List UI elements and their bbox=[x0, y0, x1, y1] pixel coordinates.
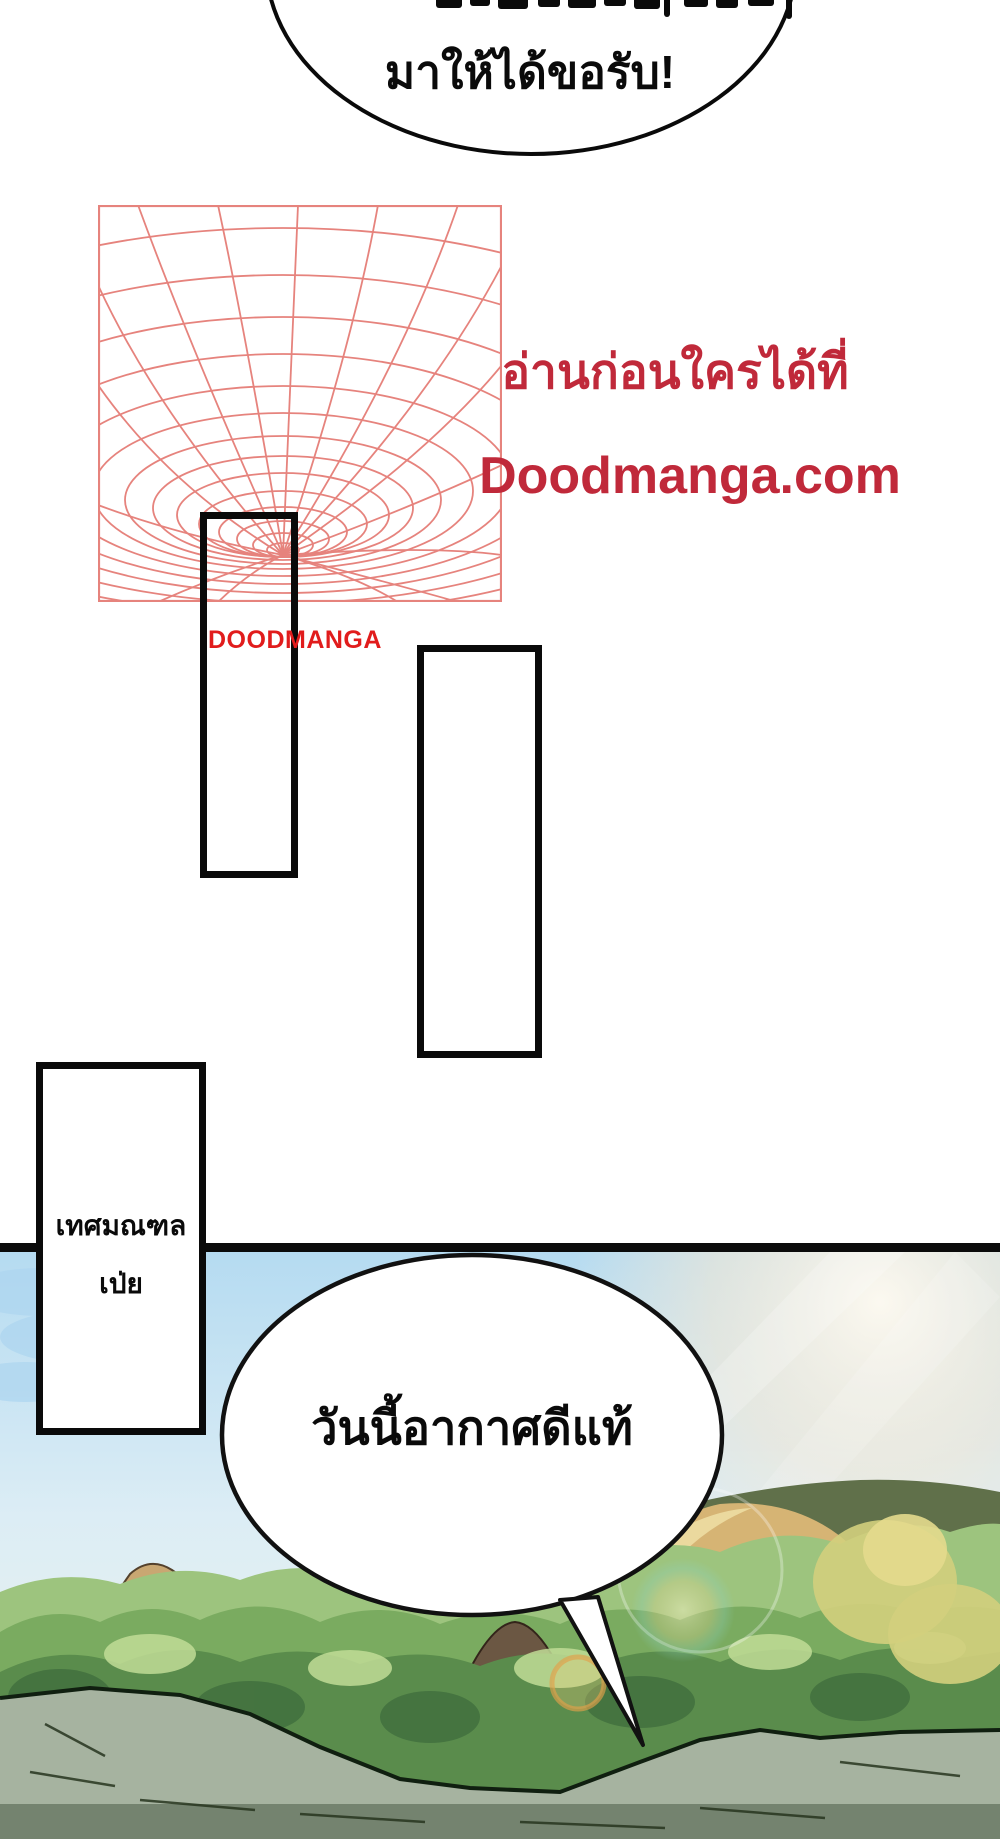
promo-site-url: Doodmanga.com bbox=[460, 446, 920, 506]
county-label-line1: เทศมณฑล bbox=[43, 1197, 199, 1255]
empty-panel-tall bbox=[417, 645, 542, 1058]
empty-panel-narrow bbox=[200, 512, 298, 878]
top-bubble-text: มาให้ได้ขอรับ! bbox=[280, 36, 780, 109]
promo-heading: อ่านก่อนใครได้ที่ bbox=[450, 334, 900, 410]
county-label-line2: เป่ย bbox=[43, 1255, 199, 1313]
county-label: เทศมณฑล เป่ย bbox=[43, 1069, 199, 1313]
county-label-panel: เทศมณฑล เป่ย bbox=[36, 1062, 206, 1435]
doodmanga-watermark: DOODMANGA bbox=[208, 626, 398, 655]
gravity-well-wireframe bbox=[98, 205, 502, 602]
scene-bubble-text: วันนี้อากาศดีแท้ bbox=[222, 1390, 722, 1465]
